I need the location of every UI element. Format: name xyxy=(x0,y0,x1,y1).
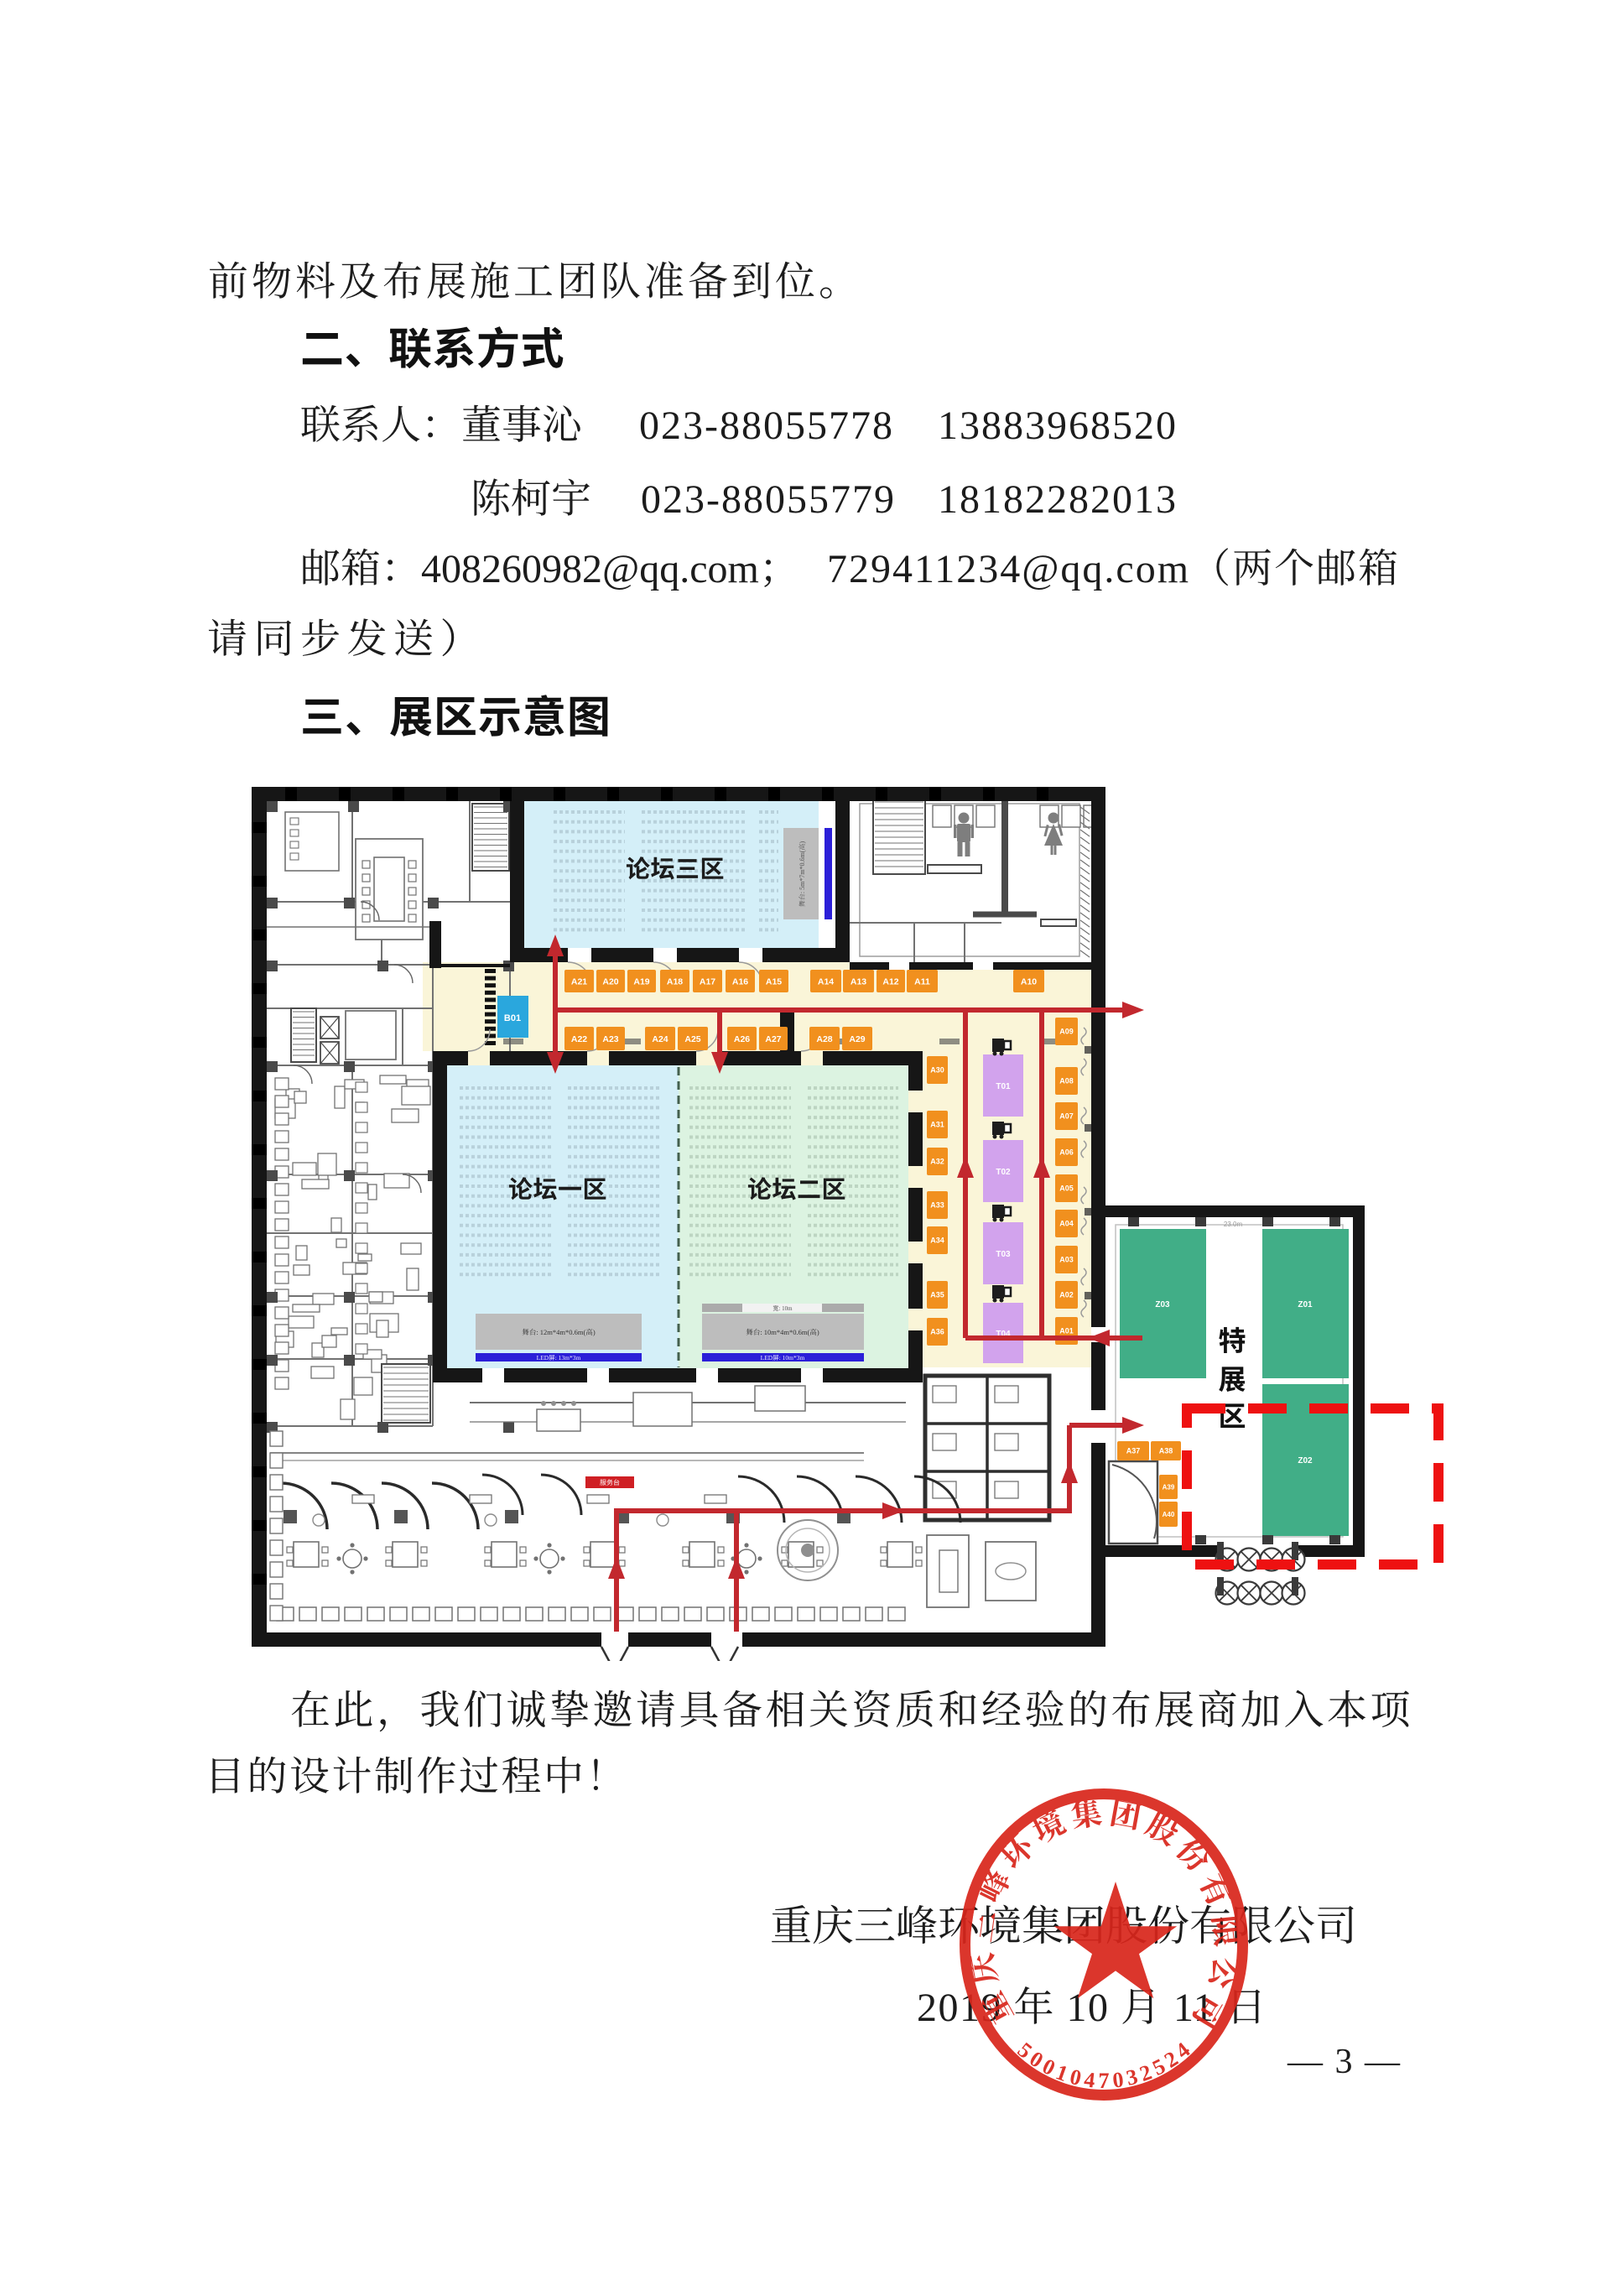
svg-text:A31: A31 xyxy=(930,1121,944,1129)
svg-text:特: 特 xyxy=(1219,1319,1246,1359)
svg-text:A37: A37 xyxy=(1126,1447,1141,1455)
svg-text:舞台: 12m*4m*0.6m(高): 舞台: 12m*4m*0.6m(高) xyxy=(522,1327,596,1337)
svg-text:A05: A05 xyxy=(1059,1184,1074,1193)
svg-text:区: 区 xyxy=(1219,1394,1246,1434)
svg-text:A15: A15 xyxy=(766,976,782,987)
svg-text:A18: A18 xyxy=(667,976,683,987)
svg-text:服务台: 服务台 xyxy=(600,1478,620,1487)
svg-text:7: 7 xyxy=(1099,2069,1110,2093)
svg-text:A21: A21 xyxy=(571,976,587,987)
svg-text:23.0m: 23.0m xyxy=(1224,1221,1243,1228)
svg-text:论坛一区: 论坛一区 xyxy=(508,1170,607,1205)
svg-text:舞台: 10m*4m*0.6m(高): 舞台: 10m*4m*0.6m(高) xyxy=(746,1327,819,1337)
svg-text:A02: A02 xyxy=(1059,1291,1074,1299)
svg-text:A34: A34 xyxy=(930,1237,944,1245)
svg-text:A33: A33 xyxy=(930,1201,944,1210)
svg-text:A07: A07 xyxy=(1059,1112,1074,1121)
svg-text:A38: A38 xyxy=(1159,1447,1173,1455)
svg-text:A09: A09 xyxy=(1059,1028,1074,1036)
svg-text:A22: A22 xyxy=(571,1034,587,1044)
svg-text:A17: A17 xyxy=(700,976,715,987)
svg-text:A28: A28 xyxy=(816,1034,832,1044)
svg-text:T01: T01 xyxy=(996,1082,1011,1091)
svg-text:0: 0 xyxy=(1111,2067,1125,2092)
svg-text:论坛三区: 论坛三区 xyxy=(626,850,725,885)
svg-text:展: 展 xyxy=(1219,1357,1246,1398)
svg-text:A27: A27 xyxy=(765,1034,781,1044)
svg-text:LED屏: 10m*3m: LED屏: 10m*3m xyxy=(761,1353,805,1362)
svg-text:集: 集 xyxy=(1068,1787,1105,1836)
svg-text:T02: T02 xyxy=(996,1168,1011,1177)
svg-text:A36: A36 xyxy=(930,1328,944,1336)
svg-text:A25: A25 xyxy=(684,1034,700,1044)
svg-text:A24: A24 xyxy=(652,1034,668,1044)
svg-text:三: 三 xyxy=(955,1908,1005,1945)
svg-text:A01: A01 xyxy=(1059,1327,1074,1335)
svg-text:A03: A03 xyxy=(1059,1256,1074,1264)
svg-text:A04: A04 xyxy=(1059,1220,1074,1228)
svg-text:限: 限 xyxy=(1204,1913,1252,1948)
svg-text:A20: A20 xyxy=(602,976,618,987)
svg-text:B01: B01 xyxy=(504,1013,521,1023)
svg-text:A23: A23 xyxy=(602,1034,618,1044)
svg-text:A16: A16 xyxy=(732,976,748,987)
svg-text:A11: A11 xyxy=(914,976,930,987)
svg-text:4: 4 xyxy=(1083,2067,1096,2092)
svg-text:Z01: Z01 xyxy=(1298,1300,1313,1309)
svg-text:A08: A08 xyxy=(1059,1077,1074,1086)
svg-text:LED屏: 13m*3m: LED屏: 13m*3m xyxy=(537,1353,581,1362)
svg-text:A40: A40 xyxy=(1163,1511,1175,1518)
svg-text:舞台: 5m*7m*0.6m(高): 舞台: 5m*7m*0.6m(高) xyxy=(798,841,807,908)
svg-text:A32: A32 xyxy=(930,1158,944,1166)
svg-text:A13: A13 xyxy=(851,976,866,987)
svg-text:A29: A29 xyxy=(849,1034,865,1044)
svg-text:A12: A12 xyxy=(882,976,898,987)
svg-text:A26: A26 xyxy=(734,1034,750,1044)
svg-text:0: 0 xyxy=(1068,2064,1084,2090)
svg-text:A19: A19 xyxy=(633,976,649,987)
svg-text:A35: A35 xyxy=(930,1291,944,1299)
svg-text:A10: A10 xyxy=(1021,976,1037,987)
svg-text:A14: A14 xyxy=(818,976,834,987)
svg-text:T03: T03 xyxy=(996,1250,1011,1259)
svg-text:Z02: Z02 xyxy=(1298,1456,1313,1466)
svg-text:A30: A30 xyxy=(930,1066,944,1075)
svg-text:论坛二区: 论坛二区 xyxy=(747,1170,846,1205)
svg-text:A06: A06 xyxy=(1059,1148,1074,1157)
svg-text:Z03: Z03 xyxy=(1155,1300,1170,1309)
svg-text:宽: 10m: 宽: 10m xyxy=(772,1304,793,1313)
svg-text:A39: A39 xyxy=(1163,1483,1175,1491)
